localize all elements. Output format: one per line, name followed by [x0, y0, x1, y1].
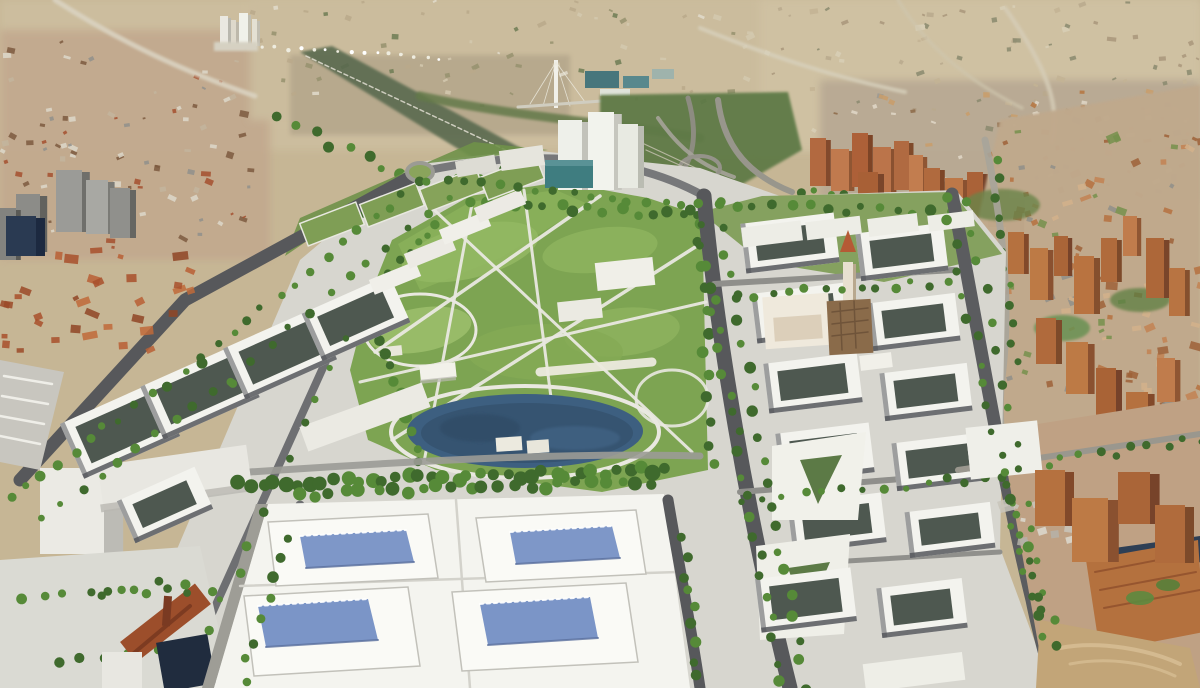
se-tower-2 — [1072, 498, 1119, 562]
navy-glass-tower — [6, 216, 45, 256]
se-tower-1 — [1035, 470, 1074, 526]
scaffold-block — [827, 299, 874, 355]
courtyard-green-2 — [1156, 579, 1180, 591]
cbd-tower-3 — [618, 124, 644, 188]
skylight-4 — [480, 597, 598, 645]
grey-shed — [652, 69, 674, 79]
city-tower-1 — [1008, 232, 1029, 274]
se-tower-4 — [1155, 505, 1194, 563]
pond-pier-1 — [496, 436, 523, 452]
courtyard-green-1 — [1126, 591, 1154, 605]
teal-shed-1 — [585, 71, 619, 88]
brick-tower-a1 — [810, 138, 831, 186]
city-tower-3 — [1054, 236, 1072, 276]
aerial-render-image — [0, 0, 1200, 688]
teal-shed-2 — [623, 76, 649, 88]
brick-tower-a2 — [831, 149, 854, 191]
cbd-tower-2 — [588, 112, 622, 190]
city-tower-5 — [1101, 238, 1122, 282]
grey-tower-1 — [56, 170, 90, 232]
construction-white — [102, 652, 142, 688]
city-tower-7 — [1146, 238, 1169, 298]
halls-layer — [202, 494, 700, 688]
city-tower-8 — [1169, 268, 1190, 316]
grey-tower-3 — [110, 188, 136, 238]
pond-pier-2 — [527, 439, 550, 454]
four-towers-4 — [252, 19, 260, 46]
city-tower-4 — [1074, 256, 1100, 314]
city-tower-2 — [1030, 248, 1053, 300]
city-tower-6 — [1123, 216, 1141, 256]
se-tower-3 — [1118, 472, 1160, 524]
courtyard-block-r12 — [876, 578, 967, 638]
skylight-3 — [258, 599, 378, 647]
towers-base — [214, 42, 258, 51]
church-facade — [773, 314, 823, 341]
city-tower-13 — [1157, 358, 1180, 402]
city-tower-11 — [1096, 368, 1122, 416]
scene-svg — [0, 0, 1200, 688]
teal-glass-top — [545, 160, 593, 166]
city-tower-10 — [1066, 342, 1095, 394]
city-tower-9 — [1036, 318, 1062, 364]
